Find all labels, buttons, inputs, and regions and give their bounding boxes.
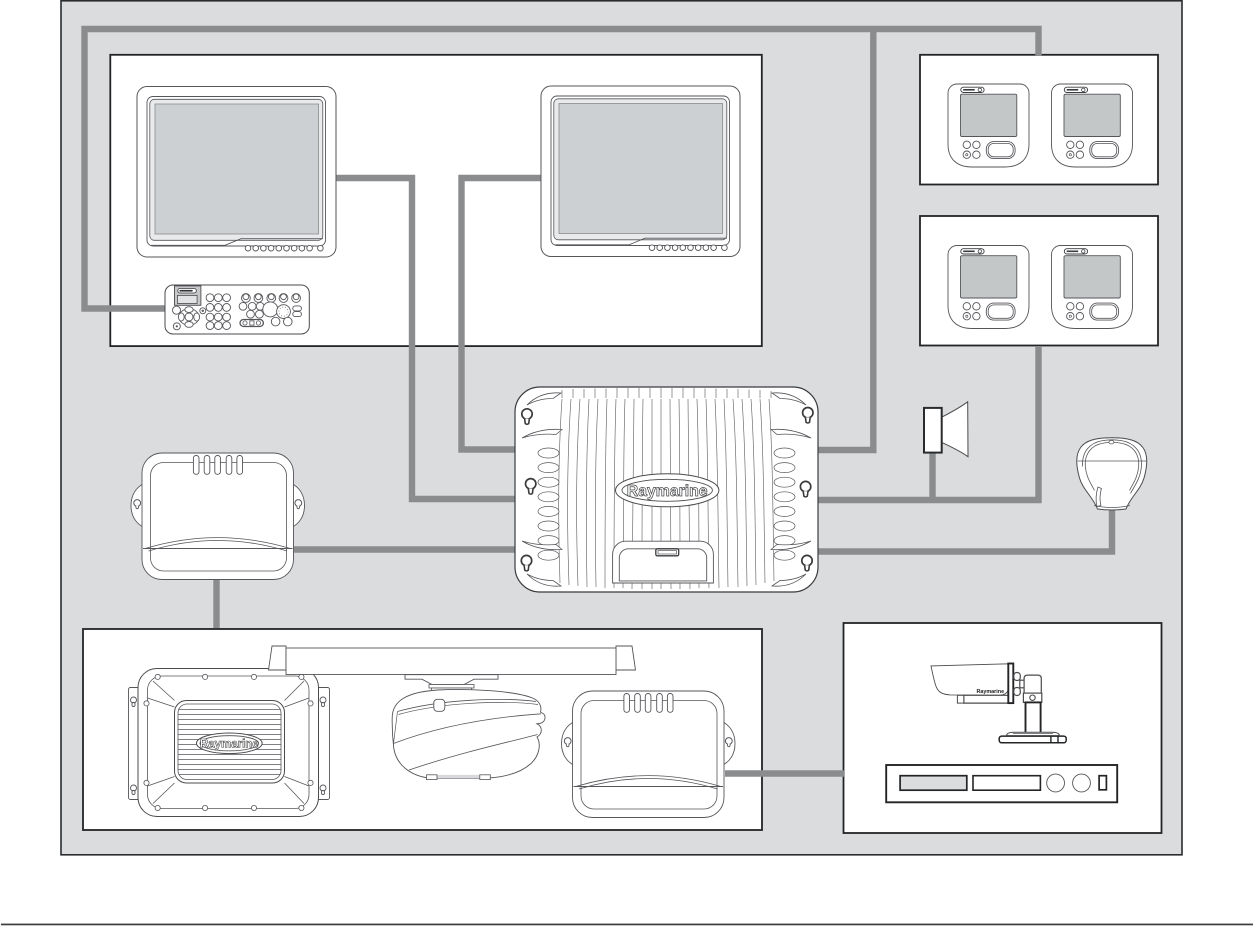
svg-text:Raymarine: Raymarine — [627, 483, 708, 500]
svg-text:Raymarine: Raymarine — [200, 739, 259, 751]
svg-text:Raymarine: Raymarine — [977, 689, 1005, 695]
